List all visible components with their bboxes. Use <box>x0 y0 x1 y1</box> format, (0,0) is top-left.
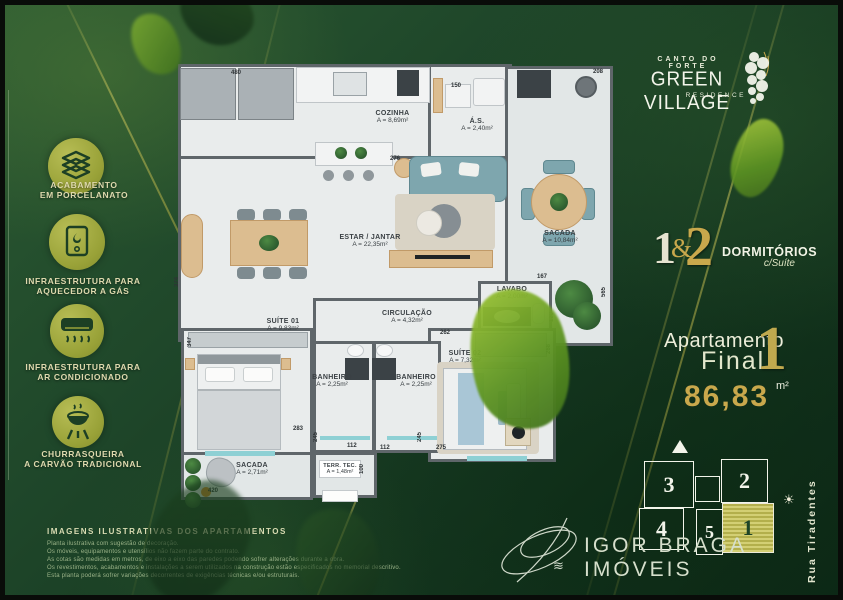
dimension: 268 <box>546 344 552 354</box>
dorm-label: DORMITÓRIOS <box>722 245 817 259</box>
stool <box>363 170 374 181</box>
room-label-as: Á.S.A = 2,40m² <box>447 118 507 132</box>
dimension: 120 <box>549 312 555 322</box>
washing-machine <box>473 78 505 106</box>
floor-plan: COZINHAA = 8,69m² Á.S.A = 2,40m² SACADAA… <box>175 62 615 502</box>
dimension: 150 <box>451 83 461 89</box>
unit-number: 2 <box>739 468 750 494</box>
dimension: 565 <box>601 287 607 297</box>
island-plant <box>355 147 367 159</box>
dimension: 167 <box>537 274 547 280</box>
air-conditioner-icon <box>50 304 104 358</box>
wardrobe <box>188 332 308 348</box>
dimension: 420 <box>208 488 218 494</box>
bed-blanket <box>198 389 280 449</box>
brand-location: CANTO DO FORTE <box>636 56 740 70</box>
lavabo-toilet <box>532 303 545 324</box>
leaf-decoration <box>169 0 265 60</box>
dimension: 262 <box>440 330 450 336</box>
dimension: 276 <box>390 156 400 162</box>
room-label-suite-02: SUÍTE 02A = 7,32m² <box>433 350 497 364</box>
sun-icon: ☀ <box>783 492 795 508</box>
ac-glyph <box>57 313 97 349</box>
kitchen-sink <box>333 72 367 96</box>
agency-name: IGOR BRAGA IMÓVEIS <box>584 534 843 582</box>
balcony-plant <box>185 458 201 474</box>
sideboard <box>181 214 203 278</box>
keyplan-connector <box>695 476 720 502</box>
dining-chair <box>289 267 307 279</box>
room-label-suite-01: SUÍTE 01A = 9,83m² <box>248 318 318 332</box>
agency-b-logo-icon <box>497 512 589 588</box>
charcoal-grill-icon <box>52 396 104 448</box>
apartment-number: 1 <box>756 314 787 385</box>
balcony-plant <box>185 492 201 508</box>
feature-label-porcelanato: ACABAMENTO EM PORCELANATO <box>14 181 154 200</box>
dimension: 283 <box>293 426 303 432</box>
dimension: 480 <box>231 70 241 76</box>
shower-glass <box>387 436 437 440</box>
tray <box>512 426 525 439</box>
grapes-logo-icon <box>742 50 772 106</box>
bed-suite-01 <box>197 354 281 450</box>
stool <box>343 170 354 181</box>
dimension: 112 <box>380 445 390 451</box>
disclaimer-line: Os móveis, equipamentos e utensílios não… <box>47 549 240 555</box>
balcony-chair <box>543 160 575 174</box>
cooktop <box>397 70 419 96</box>
feature-label-ar-condicionado: INFRAESTRUTURA PARA AR CONDICIONADO <box>8 363 158 382</box>
room-label-lavabo: LAVABOA = 2,00m² <box>482 286 542 300</box>
room-label-terraco-tecnico: TERR. TEC.A = 1,48m² <box>319 460 361 478</box>
dimension: 245 <box>417 432 423 442</box>
marketing-flyer: { "colors": { "accent_gold": "#c9a84c", … <box>0 0 843 600</box>
dining-chair <box>237 267 255 279</box>
window-strip <box>205 451 275 456</box>
dining-chair <box>263 267 281 279</box>
kitchen-cabinet <box>238 68 294 120</box>
dimension: 245 <box>313 432 319 442</box>
room-label-banheiro-1: BANHEIROA = 2,25m² <box>303 374 361 388</box>
heater-glyph <box>59 223 95 261</box>
feature-label-aquecedor: INFRAESTRUTURA PARA AQUECEDOR A GÁS <box>8 277 158 296</box>
nightstand <box>185 358 195 370</box>
brand-type: RESIDENCE <box>626 92 746 99</box>
keyplan-unit-2: 2 <box>721 459 768 503</box>
gas-heater-icon <box>49 214 105 270</box>
window-strip <box>467 456 527 461</box>
island-plant <box>335 147 347 159</box>
coffee-table-small <box>416 210 442 236</box>
stool <box>323 170 334 181</box>
waves-icon: ≋ <box>553 558 564 574</box>
dimension: 347 <box>187 337 193 347</box>
bed-blanket <box>458 373 484 445</box>
dimension: 112 <box>347 443 357 449</box>
sofa-pillow <box>420 162 442 178</box>
bed-pillow <box>243 367 273 382</box>
disclaimer-line: Os revestimentos, acabamentos e instalaç… <box>47 565 401 571</box>
leaf-decoration <box>724 113 790 202</box>
bathroom-toilet <box>347 344 364 357</box>
dorm-count-2: 2 <box>685 215 713 279</box>
room-label-sacada-inferior: SACADAA = 2,71m² <box>217 462 287 476</box>
garden-bush <box>573 302 601 330</box>
nightstand <box>281 358 291 370</box>
room-label-circulacao: CIRCULAÇÃOA = 4,32m² <box>367 310 447 324</box>
dimension: 275 <box>436 445 446 451</box>
disclaimer-line: Planta ilustrativa com sugestão de decor… <box>47 541 179 547</box>
bed-pillow <box>205 367 235 382</box>
grill-glyph <box>60 402 96 442</box>
disclaimer-line: As cotas são medidas em metros, de eixo … <box>47 557 345 563</box>
room-label-estar: ESTAR / JANTARA = 22,35m² <box>320 234 420 248</box>
room-label-cozinha: COZINHAA = 8,69m² <box>335 110 450 124</box>
tv <box>415 255 470 259</box>
bed-headboard <box>198 355 280 364</box>
tv-console <box>389 250 493 268</box>
feature-label-churrasqueira: CHURRASQUEIRA A CARVÃO TRADICIONAL <box>8 450 158 469</box>
dimension: 374 <box>174 277 180 287</box>
balcony-plant <box>185 475 201 491</box>
balcony-bench <box>517 70 551 98</box>
apartment-area-unit: m² <box>776 380 789 392</box>
sofa-pillow <box>458 162 479 177</box>
dining-centerpiece <box>259 235 279 251</box>
laundry-shelf <box>433 78 443 113</box>
kitchen-cabinet <box>180 68 236 120</box>
bathroom-toilet <box>376 344 393 357</box>
flyer-background: ACABAMENTO EM PORCELANATO INFRAESTRUTURA… <box>0 0 843 600</box>
dorm-suite-label: c/Suíte <box>722 258 795 269</box>
dimension: 100 <box>359 464 365 474</box>
lavabo-sink <box>494 310 520 323</box>
keyplan-unit-3: 3 <box>644 461 694 508</box>
footer-title: IMAGENS ILUSTRATIVAS DOS APARTAMENTOS <box>47 527 287 536</box>
apartment-area-value: 86,83 <box>684 380 769 414</box>
unit-number: 3 <box>664 472 675 498</box>
north-arrow-icon <box>672 440 688 453</box>
disclaimer-line: Esta planta poderá sofrer variações deco… <box>47 573 299 579</box>
shower-glass <box>320 436 370 440</box>
balcony-basin <box>575 76 597 98</box>
pouf-tray <box>505 418 531 446</box>
dimension: 208 <box>593 69 603 75</box>
balcony-table-plant <box>550 193 568 211</box>
lavabo-vanity <box>483 307 531 326</box>
room-label-banheiro-2: BANHEIROA = 2,25m² <box>387 374 445 388</box>
tech-terrace-equipment <box>322 490 358 502</box>
room-label-sacada-superior: SACADAA = 10,84m² <box>525 230 595 244</box>
kitchen-island <box>315 142 393 166</box>
